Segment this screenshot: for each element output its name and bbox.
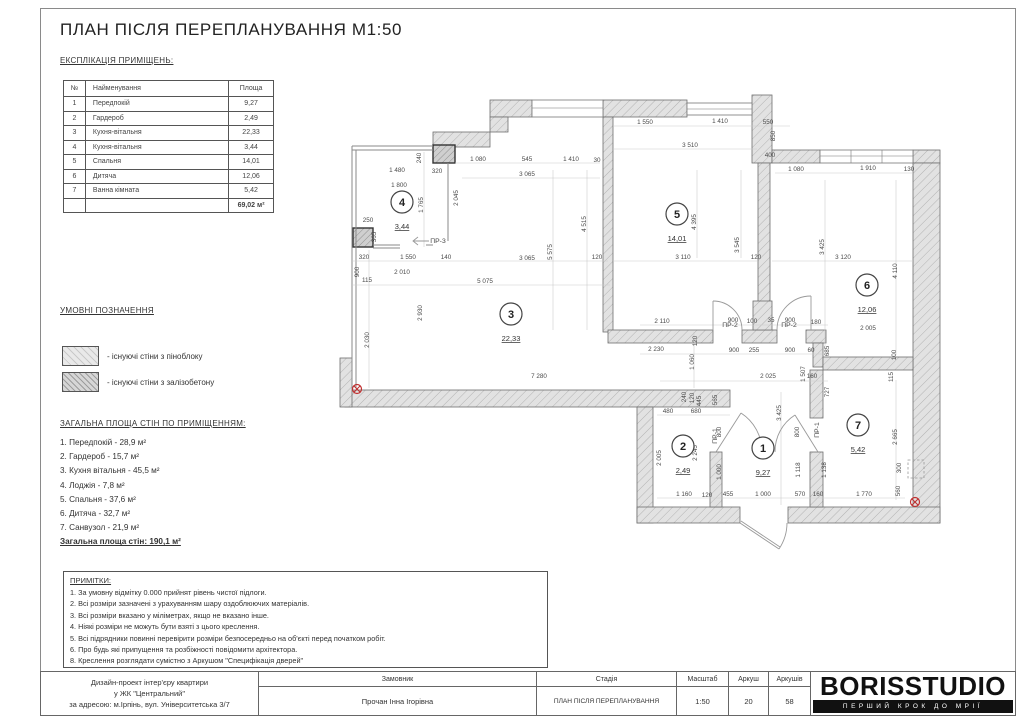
room-area-label: 22,33 [502,334,521,343]
dimension-label: 4 395 [691,214,698,230]
scale-label: Масштаб [677,672,728,687]
dimension-label: 1 138 [821,462,828,478]
dimension-label: 3 425 [776,405,783,421]
dimension-label: 240 [416,152,423,163]
dimension-label: 1 060 [689,354,696,370]
dimension-label: 100 [891,349,898,360]
dimension-label: 3 510 [682,142,698,149]
dimension-label: 2 005 [860,325,876,332]
dimension-label: 3 110 [675,254,691,261]
room-marker-6: 612,06 [856,274,878,314]
concrete-pillar [433,145,455,163]
dimension-label: 240 [681,391,688,402]
dimension-label: 1 550 [400,254,416,261]
dimension-label: 115 [362,277,373,284]
studio-logo: BORISSTUDIO ПЕРШИЙ КРОК ДО МРІЇ [811,672,1015,715]
dimension-label: 160 [807,373,818,380]
sheet-number: 20 [729,687,768,715]
dimension-label: 565 [712,394,719,405]
entrance-door-swing [779,523,787,549]
title-block-sheet: Аркуш 20 [729,672,769,715]
room-number: 3 [508,309,514,321]
dimension-label: 1 770 [856,491,872,498]
dimension-labels-layer: 2401 4803201 8001 7652 0452503653201 550… [354,118,915,499]
project-line: за адресою: м.Ірпінь, вул. Університетсь… [41,699,258,710]
windows-layer [532,100,913,163]
dimension-label: 570 [795,491,806,498]
door-label: ПР-3 [430,238,446,245]
dimension-label: 400 [765,152,776,159]
room-number: 1 [760,443,766,455]
room-area-label: 12,06 [858,305,877,314]
dimension-label: 2 025 [760,373,776,380]
dimension-label: 4 110 [892,263,899,279]
title-block-project: Дизайн-проект інтер'єру квартири у ЖК "Ц… [41,672,259,715]
dimension-label: 1 118 [795,462,802,478]
dimension-label: 2 030 [364,332,371,348]
floor-plan: 2401 4803201 8001 7652 0452503653201 550… [0,0,1024,724]
dimension-label: 250 [363,217,374,224]
dimension-label: 7 280 [531,373,547,380]
dimension-label: 3 065 [519,255,535,262]
dimension-label: 1 550 [637,119,653,126]
dimension-label: 35 [767,317,775,324]
dimension-label: 130 [904,166,915,173]
dimension-label: 2 045 [453,190,460,206]
room-area-label: 9,27 [756,468,771,477]
door-direction-arrow-icon [413,237,429,245]
room-number: 7 [855,420,861,432]
dimension-lines-layer [352,126,913,505]
dimension-label: 120 [689,392,696,403]
dimension-label: 1 080 [470,156,486,163]
sheet-label: Аркуш [729,672,768,687]
title-block-stage: Стадія ПЛАН ПІСЛЯ ПЕРЕПЛАНУВАННЯ [537,672,677,715]
room-marker-1: 19,27 [752,437,774,477]
dimension-label: 1 765 [418,197,425,213]
dimension-label: 550 [763,119,774,126]
dimension-label: 1 480 [389,167,405,174]
room-marker-3: 322,33 [500,303,522,343]
customer-name: Прочан Інна Ігорівна [259,687,536,715]
dimension-label: 180 [811,319,822,326]
dimension-label: 300 [896,462,903,473]
room-marker-7: 75,42 [847,414,869,454]
stage-value: ПЛАН ПІСЛЯ ПЕРЕПЛАНУВАННЯ [537,687,676,715]
dimension-label: 850 [770,130,777,141]
dimension-label: 900 [729,347,740,354]
title-block-sheets: Аркушів 58 [769,672,811,715]
entrance-door-leaf [740,521,780,549]
dimension-label: 120 [702,492,713,499]
dimension-label: 685 [824,345,831,356]
dimension-label: 255 [749,347,760,354]
logo-slogan: ПЕРШИЙ КРОК ДО МРІЇ [813,700,1013,713]
dimension-label: 120 [692,335,699,346]
stage-label: Стадія [537,672,676,687]
dimension-label: 1 080 [788,166,804,173]
dimension-label: 30 [593,157,601,164]
sheets-total: 58 [769,687,810,715]
room-number: 2 [680,441,686,453]
project-line: Дизайн-проект інтер'єру квартири [41,677,258,688]
drawing-sheet: ПЛАН ПІСЛЯ ПЕРЕПЛАНУВАННЯ М1:50 ЕКСПЛІКА… [0,0,1024,724]
sheets-label: Аркушів [769,672,810,687]
dimension-label: 115 [888,371,895,382]
dimension-label: 445 [696,395,703,406]
room-area-label: 14,01 [668,234,687,243]
dimension-label: 3 120 [835,254,851,261]
dimension-label: 320 [359,254,370,261]
room-number: 4 [399,197,406,209]
dimension-label: 2 665 [892,429,899,445]
dimension-label: 2 230 [648,346,664,353]
room-marker-4: 43,44 [391,191,413,231]
project-line: у ЖК "Центральний" [41,688,258,699]
dimension-label: 3 065 [519,171,535,178]
room-area-label: 2,49 [676,466,691,475]
dimension-label: 1 800 [391,182,407,189]
dimension-label: 545 [522,156,533,163]
dimension-label: 800 [794,426,801,437]
door-label: ПР-2 [722,322,738,329]
dimension-label: 365 [371,231,378,242]
dimension-label: 5 075 [477,278,493,285]
door-label: ПР-1 [712,428,719,444]
dimension-label: 1 000 [755,491,771,498]
dimension-label: 1 160 [676,491,692,498]
door-label: ПР-1 [814,422,821,438]
title-block-customer: Замовник Прочан Інна Ігорівна [259,672,537,715]
dimension-label: 100 [747,318,758,325]
dimension-label: 900 [354,266,361,277]
dimension-label: 2 010 [394,269,410,276]
dimension-label: 900 [785,347,796,354]
room-marker-2: 22,49 [672,435,694,475]
dimension-label: 1 410 [712,118,728,125]
dimension-label: 2 110 [654,318,670,325]
dimension-label: 5 575 [547,244,554,260]
dimension-label: 120 [592,254,603,261]
dimension-label: 4 515 [581,216,588,232]
scale-value: 1:50 [677,687,728,715]
customer-label: Замовник [259,672,536,687]
dimension-label: 3 425 [819,239,826,255]
dimension-label: 480 [663,408,674,415]
dimension-label: 680 [691,408,702,415]
dimension-label: 160 [813,491,824,498]
dimension-label: 455 [723,491,734,498]
dimension-label: 320 [432,168,443,175]
dimension-label: 560 [895,485,902,496]
door-label: ПР-2 [781,322,797,329]
dimension-label: 120 [751,254,762,261]
dimension-label: 2 005 [656,450,663,466]
title-block: Дизайн-проект інтер'єру квартири у ЖК "Ц… [40,671,1016,716]
dimension-label: 3 545 [734,237,741,253]
room-number: 6 [864,280,870,292]
room-area-label: 3,44 [395,222,410,231]
dimension-label: 1 000 [716,464,723,480]
dimension-label: 60 [807,347,815,354]
dimension-label: 1 410 [563,156,579,163]
title-block-scale: Масштаб 1:50 [677,672,729,715]
dimension-label: 1 910 [860,165,876,172]
room-area-label: 5,42 [851,445,866,454]
dimension-label: 140 [441,254,452,261]
room-number: 5 [674,209,680,221]
dimension-label: 2 930 [417,305,424,321]
dimension-label: 727 [824,386,831,397]
logo-wordmark: BORISSTUDIO [813,673,1013,700]
room-marker-5: 514,01 [666,203,688,243]
